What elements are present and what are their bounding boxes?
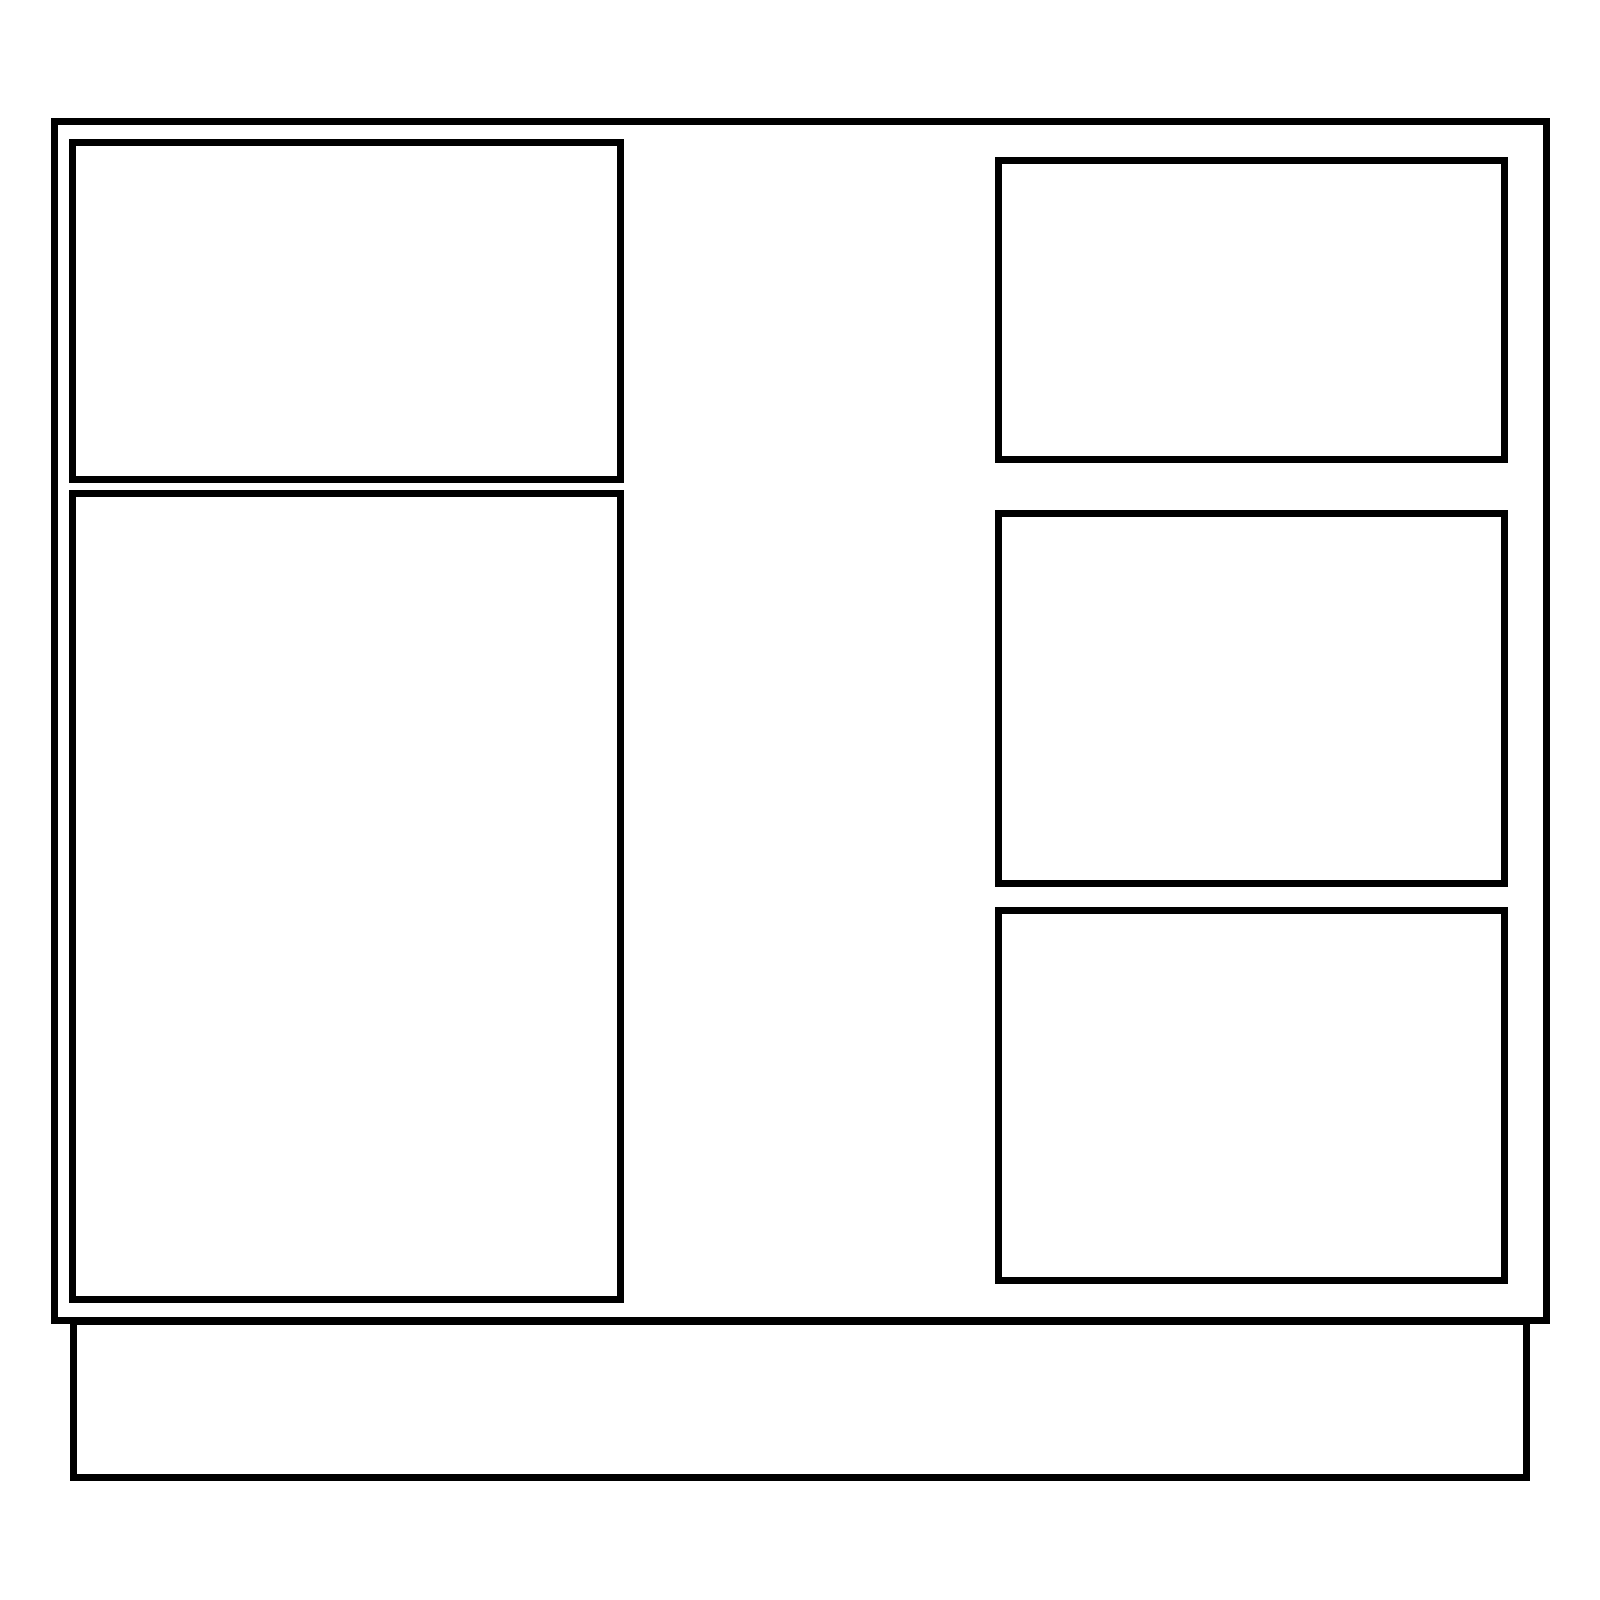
right-middle-drawer-panel	[995, 510, 1508, 887]
left-door-panel	[69, 490, 624, 1303]
right-bottom-drawer-panel	[995, 907, 1508, 1284]
right-top-drawer-panel	[995, 157, 1508, 463]
plinth-base-outline	[70, 1318, 1530, 1481]
drawing-canvas	[0, 0, 1600, 1600]
left-drawer-front-panel	[69, 139, 624, 483]
